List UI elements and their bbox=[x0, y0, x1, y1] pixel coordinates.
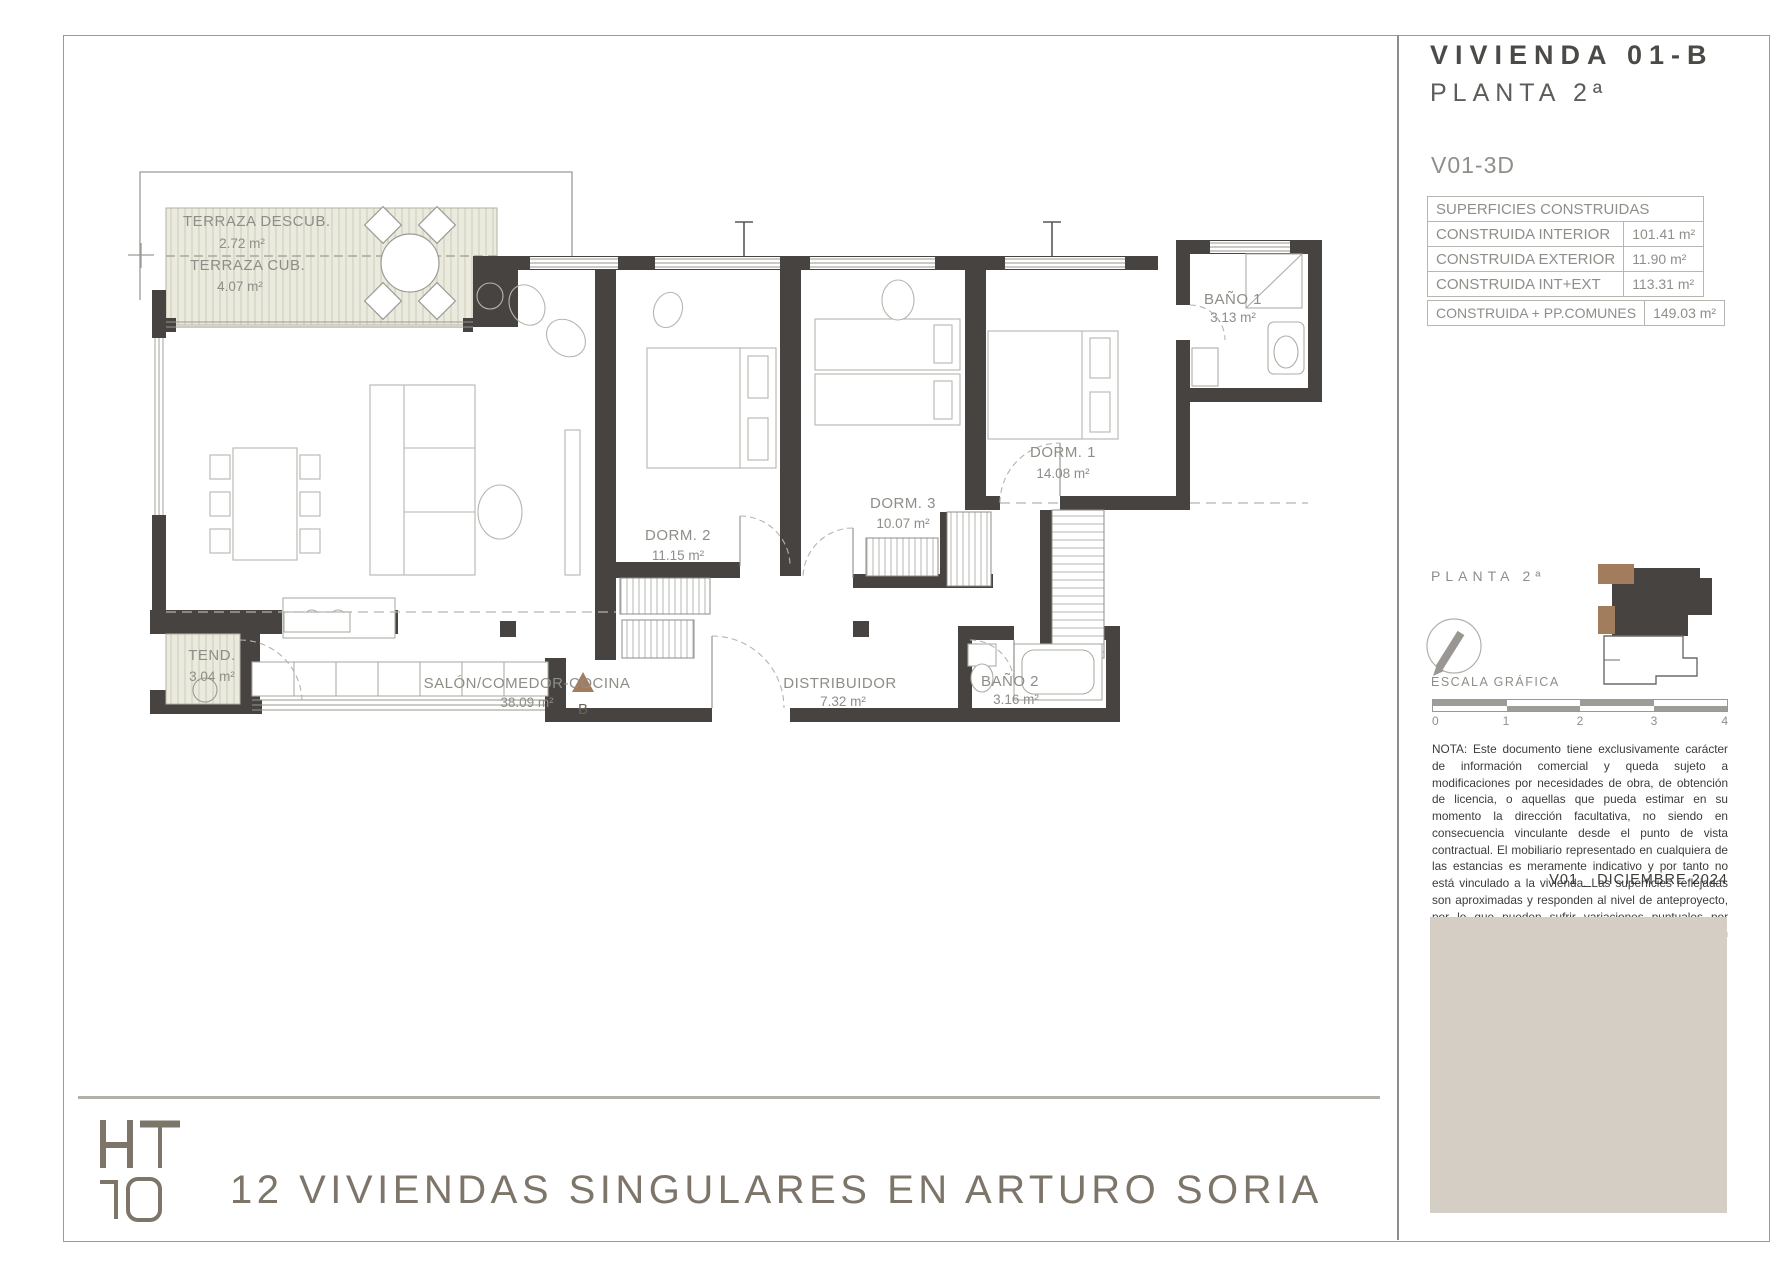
north-compass-icon bbox=[1427, 619, 1481, 676]
room-area: 38.09 m² bbox=[500, 695, 554, 710]
project-title: 12 VIVIENDAS SINGULARES EN ARTURO SORIA bbox=[230, 1168, 1323, 1213]
room-area: 7.32 m² bbox=[820, 694, 866, 709]
surfaces-total-table: CONSTRUIDA + PP.COMUNES 149.03 m² bbox=[1427, 300, 1725, 326]
total-value: 149.03 m² bbox=[1645, 301, 1725, 326]
room-label: DORM. 2 bbox=[645, 527, 711, 544]
scale-label: ESCALA GRÁFICA bbox=[1431, 675, 1560, 689]
graphic-scale-bar bbox=[1432, 699, 1728, 712]
title-block: VIVIENDA 01-B PLANTA 2ª bbox=[1430, 40, 1730, 108]
plan-sheet: B TERRAZA DESCUB. 2.72 m² TERRAZA CUB. 4… bbox=[0, 0, 1786, 1263]
room-area: 2.72 m² bbox=[219, 236, 265, 251]
room-area: 10.07 m² bbox=[876, 516, 930, 531]
room-label: BAÑO 2 bbox=[981, 673, 1039, 690]
room-label: DISTRIBUIDOR bbox=[783, 675, 897, 692]
floor-title: PLANTA 2ª bbox=[1430, 79, 1730, 108]
scale-ticks: 0 1 2 3 4 bbox=[1432, 714, 1728, 728]
room-area: 3.16 m² bbox=[993, 692, 1039, 707]
table-row: CONSTRUIDA INTERIOR 101.41 m² bbox=[1428, 222, 1704, 247]
row-label: CONSTRUIDA INT+EXT bbox=[1428, 272, 1624, 297]
table-header-row: SUPERFICIES CONSTRUIDAS bbox=[1428, 197, 1704, 222]
locator-floor-label: PLANTA 2ª bbox=[1431, 568, 1546, 584]
section-ticks bbox=[735, 222, 1061, 256]
row-value: 11.90 m² bbox=[1624, 247, 1704, 272]
total-label: CONSTRUIDA + PP.COMUNES bbox=[1428, 301, 1645, 326]
surfaces-table: SUPERFICIES CONSTRUIDAS CONSTRUIDA INTER… bbox=[1427, 196, 1704, 297]
room-area: 14.08 m² bbox=[1036, 466, 1090, 481]
model-label: V01-3D bbox=[1431, 152, 1515, 179]
room-area: 3.04 m² bbox=[189, 669, 235, 684]
room-label: SALÓN/COMEDOR-COCINA bbox=[424, 675, 631, 692]
version-date: V01 _ DICIEMBRE 2024 bbox=[1432, 872, 1728, 888]
table-header: SUPERFICIES CONSTRUIDAS bbox=[1428, 197, 1704, 222]
scale-tick: 1 bbox=[1503, 714, 1510, 728]
room-area: 11.15 m² bbox=[652, 548, 705, 563]
floor-locator-map bbox=[1598, 564, 1712, 684]
unit-title: VIVIENDA 01-B bbox=[1430, 40, 1730, 71]
table-row: CONSTRUIDA EXTERIOR 11.90 m² bbox=[1428, 247, 1704, 272]
bedroom-furniture bbox=[647, 280, 1118, 468]
room-label: DORM. 1 bbox=[1030, 444, 1096, 461]
ht10-logo-footer bbox=[100, 1120, 180, 1220]
room-label: TERRAZA CUB. bbox=[190, 257, 305, 274]
scale-tick: 3 bbox=[1651, 714, 1658, 728]
room-label: DORM. 3 bbox=[870, 495, 936, 512]
scale-tick: 2 bbox=[1577, 714, 1584, 728]
room-area: 4.07 m² bbox=[217, 279, 263, 294]
scale-tick: 4 bbox=[1721, 714, 1728, 728]
table-row: CONSTRUIDA + PP.COMUNES 149.03 m² bbox=[1428, 301, 1725, 326]
room-label: BAÑO 1 bbox=[1204, 291, 1262, 308]
dashed-lines bbox=[166, 503, 1308, 612]
room-label: TERRAZA DESCUB. bbox=[183, 213, 331, 230]
room-area: 3.13 m² bbox=[1210, 310, 1256, 325]
room-label: TEND. bbox=[188, 647, 236, 664]
row-label: CONSTRUIDA INTERIOR bbox=[1428, 222, 1624, 247]
brand-panel bbox=[1430, 917, 1727, 1213]
row-value: 101.41 m² bbox=[1624, 222, 1704, 247]
svg-text:B: B bbox=[578, 701, 588, 718]
scale-tick: 0 bbox=[1432, 714, 1439, 728]
table-row: CONSTRUIDA INT+EXT 113.31 m² bbox=[1428, 272, 1704, 297]
row-label: CONSTRUIDA EXTERIOR bbox=[1428, 247, 1624, 272]
row-value: 113.31 m² bbox=[1624, 272, 1704, 297]
